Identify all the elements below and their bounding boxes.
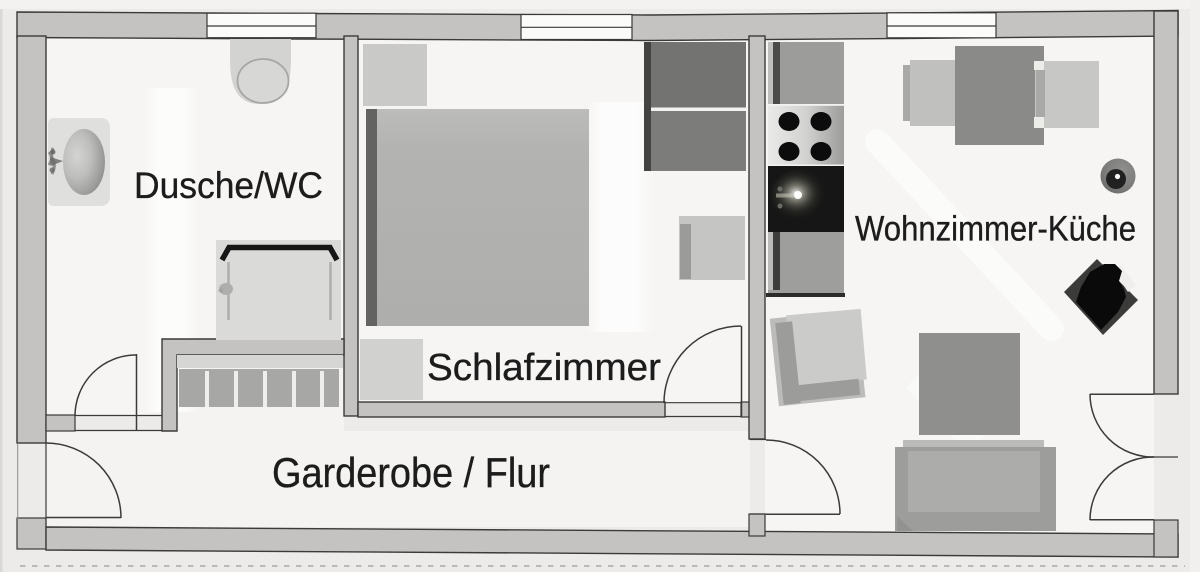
svg-text:Dusche/WC: Dusche/WC [134,164,323,206]
svg-text:Garderobe / Flur: Garderobe / Flur [272,449,550,496]
svg-text:Schlafzimmer: Schlafzimmer [427,347,661,389]
svg-text:Wohnzimmer-Küche: Wohnzimmer-Küche [855,210,1136,249]
